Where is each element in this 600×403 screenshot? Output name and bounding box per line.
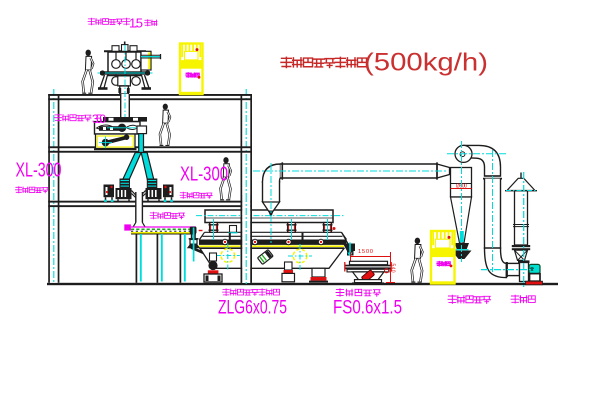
svg-text:350: 350 — [92, 112, 106, 126]
svg-text:ZLG6x0.75: ZLG6x0.75 — [218, 298, 287, 319]
svg-text:(500kg/h): (500kg/h) — [364, 49, 488, 77]
svg-text:XL-300: XL-300 — [16, 160, 62, 182]
svg-text:FS0.6x1.5: FS0.6x1.5 — [333, 298, 402, 319]
svg-text:1.5: 1.5 — [129, 16, 143, 31]
svg-text:XL-300: XL-300 — [180, 164, 228, 186]
svg-text:1500: 1500 — [358, 249, 373, 255]
